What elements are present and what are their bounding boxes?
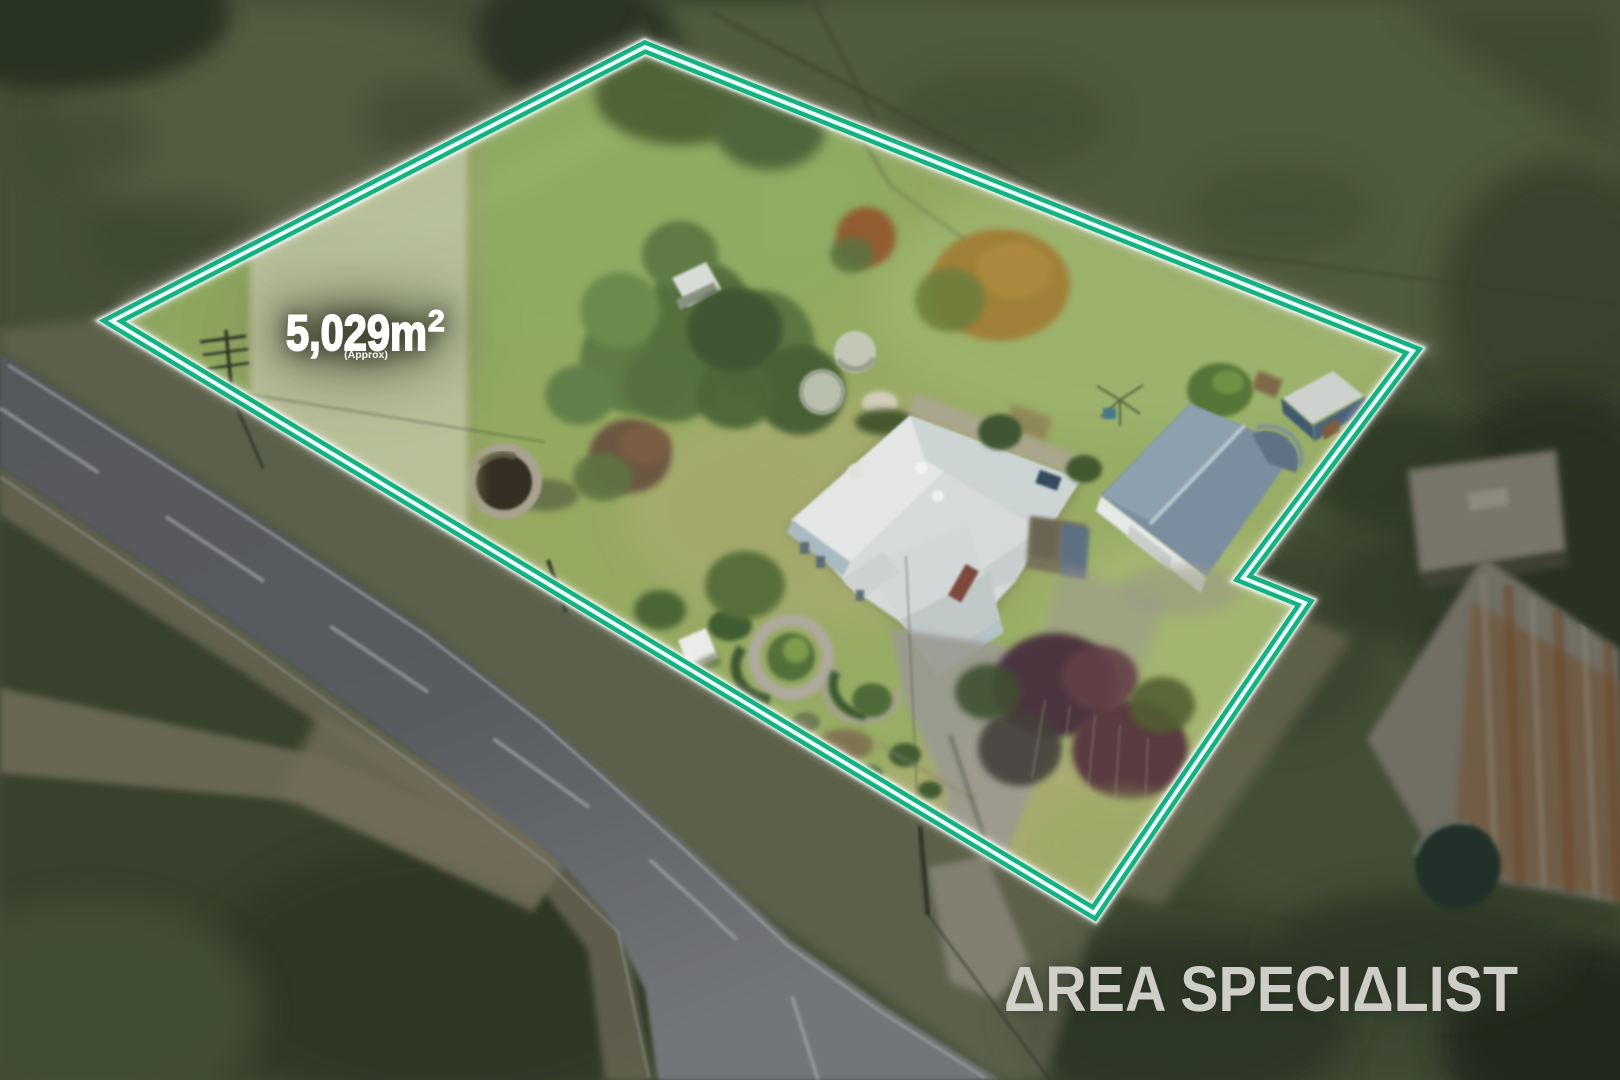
svg-text:ΔREA SPECIΔLIST: ΔREA SPECIΔLIST [1004,953,1518,1025]
svg-text:(Approx): (Approx) [344,349,388,361]
svg-text:2: 2 [428,305,445,338]
